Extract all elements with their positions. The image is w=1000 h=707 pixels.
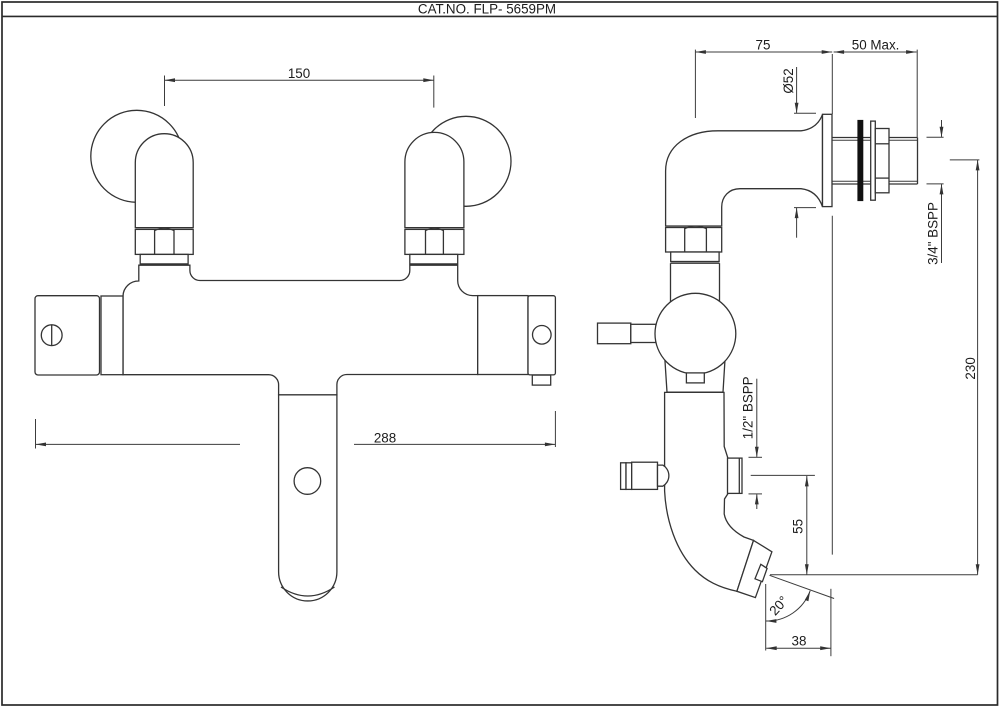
svg-text:38: 38 bbox=[792, 633, 807, 648]
svg-text:3/4" BSPP: 3/4" BSPP bbox=[926, 202, 941, 265]
svg-text:150: 150 bbox=[288, 66, 310, 81]
svg-text:288: 288 bbox=[374, 431, 396, 446]
svg-text:CAT.NO. FLP- 5659PM: CAT.NO. FLP- 5659PM bbox=[418, 2, 556, 17]
svg-text:1/2" BSPP: 1/2" BSPP bbox=[741, 376, 756, 439]
svg-text:75: 75 bbox=[756, 38, 771, 53]
svg-text:50 Max.: 50 Max. bbox=[852, 38, 900, 53]
svg-text:55: 55 bbox=[790, 519, 805, 534]
svg-text:Ø52: Ø52 bbox=[781, 68, 796, 93]
svg-text:230: 230 bbox=[963, 357, 978, 379]
